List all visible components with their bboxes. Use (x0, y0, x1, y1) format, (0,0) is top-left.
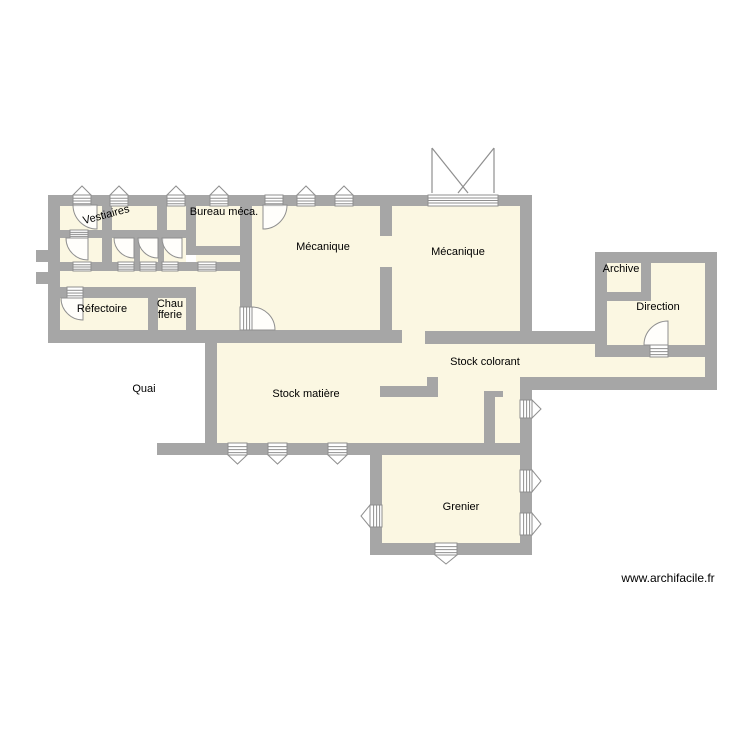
window-symbol (328, 443, 347, 455)
room-area (196, 287, 240, 330)
wall (380, 267, 392, 330)
room-area (392, 205, 520, 331)
window-symbol (73, 195, 91, 206)
room-label-bureau-meca: Bureau méca. (190, 206, 258, 218)
window-direction-triangle (532, 513, 541, 535)
room-label-mecanique-2: Mécanique (431, 246, 485, 258)
window-direction-triangle (532, 400, 541, 418)
room-area (60, 271, 240, 287)
wall (484, 391, 503, 397)
watermark-text: www.archifacile.fr (621, 571, 714, 585)
room-label-refectoire: Réfectoire (77, 303, 127, 315)
wall (102, 238, 112, 262)
window-direction-triangle (328, 455, 347, 464)
garage-door-symbol (458, 148, 494, 193)
wall (186, 298, 196, 330)
window-symbol (520, 513, 532, 535)
window-symbol (240, 307, 252, 330)
wall (36, 250, 48, 262)
window-symbol (650, 345, 668, 357)
room-label-stock-matiere: Stock matière (272, 388, 339, 400)
window-symbol (435, 543, 457, 555)
wall (705, 252, 717, 390)
window-symbol (210, 195, 228, 206)
window-symbol (520, 470, 532, 492)
wall (380, 195, 392, 236)
window-symbol (335, 195, 353, 206)
room-label-quai: Quai (132, 383, 155, 395)
window-direction-triangle (335, 186, 353, 195)
window-symbol (297, 195, 315, 206)
window-symbol (268, 443, 287, 455)
room-label-archive: Archive (603, 263, 640, 275)
room-area (402, 331, 425, 344)
window-direction-triangle (167, 186, 185, 195)
room-label-direction: Direction (636, 301, 679, 313)
room-label-grenier: Grenier (443, 501, 480, 513)
window-direction-triangle (268, 455, 287, 464)
room-area (380, 236, 392, 267)
window-symbol (167, 195, 185, 206)
window-direction-triangle (110, 186, 128, 195)
window-direction-triangle (228, 455, 247, 464)
floor-plan-canvas: VestiairesBureau méca.MécaniqueMécanique… (0, 0, 750, 750)
window-direction-triangle (361, 505, 370, 527)
wall (48, 195, 60, 343)
room-area (167, 205, 186, 231)
wall (48, 330, 402, 343)
garage-door-symbol (432, 148, 468, 193)
window-direction-triangle (210, 186, 228, 195)
window-symbol (228, 443, 247, 455)
wall (157, 205, 167, 231)
wall (520, 195, 532, 331)
wall (641, 263, 651, 301)
wall (383, 443, 532, 455)
wall (484, 397, 495, 443)
window-direction-triangle (297, 186, 315, 195)
wall (380, 386, 438, 397)
window-direction-triangle (435, 555, 457, 564)
wall (36, 272, 48, 284)
wall (370, 443, 382, 555)
wall (520, 377, 717, 390)
wall (595, 252, 717, 263)
room-area (196, 255, 240, 262)
window-symbol (520, 400, 532, 418)
window-symbol (67, 287, 83, 298)
floor-plan-drawing: VestiairesBureau méca.MécaniqueMécanique… (0, 0, 750, 750)
window-symbol (265, 195, 283, 206)
window-symbol (370, 505, 382, 527)
window-direction-triangle (532, 470, 541, 492)
room-area (382, 455, 520, 543)
room-label-mecanique-1: Mécanique (296, 241, 350, 253)
room-label-stock-colorant: Stock colorant (450, 356, 520, 368)
room-label-chaufferie: Chaufferie (157, 298, 183, 321)
wall (205, 330, 217, 455)
window-direction-triangle (73, 186, 91, 195)
wall (425, 331, 532, 344)
